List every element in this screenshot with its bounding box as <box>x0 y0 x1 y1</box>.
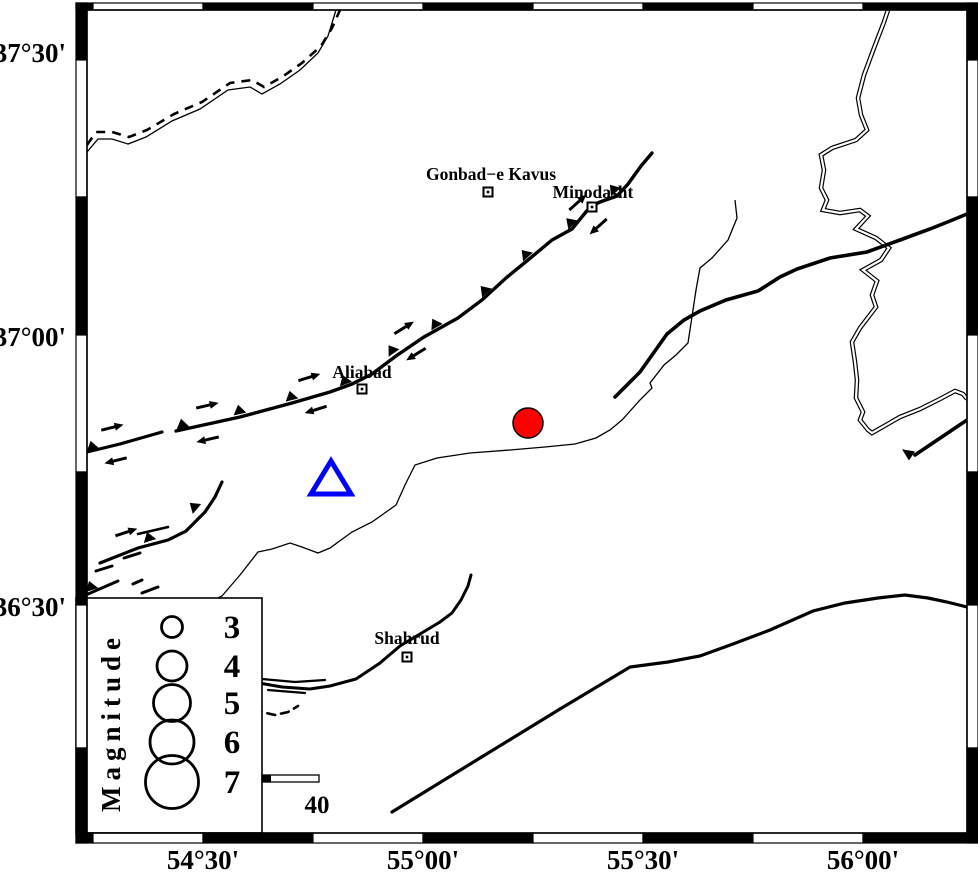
city-marker-dot <box>361 388 364 391</box>
city-label: Gonbad−e Kavus <box>426 164 556 184</box>
frame-band-segment <box>76 197 87 335</box>
seismotectonic-map: Gonbad−e KavusMinodashtAliabadShahrud Ma… <box>0 0 978 873</box>
map-canvas: Gonbad−e KavusMinodashtAliabadShahrud Ma… <box>0 0 978 873</box>
frame-band-segment <box>753 3 863 10</box>
city-label: Aliabad <box>332 362 392 382</box>
frame-band-segment <box>967 472 978 605</box>
epicenter-marker <box>513 408 543 438</box>
frame-band-segment <box>76 472 87 605</box>
frame-band-segment <box>93 3 203 10</box>
legend-magnitude-value: 7 <box>224 765 241 801</box>
magnitude-legend: Magnitude 34567 <box>76 598 262 833</box>
frame-band-segment <box>533 3 643 10</box>
frame-band-segment <box>643 833 753 843</box>
y-axis-label: 36°30' <box>0 592 66 622</box>
x-axis-label: 55°00' <box>387 845 459 873</box>
frame-band-segment <box>76 60 87 197</box>
y-axis-label: 37°30' <box>0 38 66 68</box>
legend-magnitude-value: 3 <box>224 610 241 646</box>
city-label: Shahrud <box>374 628 439 648</box>
y-axis-label: 37°00' <box>0 322 66 352</box>
frame-band-segment <box>423 833 533 843</box>
scale-bar-label: 40 <box>305 792 330 819</box>
city-label: Minodasht <box>553 182 634 202</box>
frame-band-segment <box>863 833 978 843</box>
legend-title: Magnitude <box>96 632 126 812</box>
frame-band-segment <box>967 197 978 335</box>
frame-band-segment <box>967 3 978 60</box>
frame-band-segment <box>533 833 643 843</box>
frame-band-segment <box>203 3 313 10</box>
x-axis-label: 56°00' <box>827 845 899 873</box>
frame-band-segment <box>643 3 753 10</box>
frame-band-segment <box>863 3 978 10</box>
frame-band-segment <box>76 605 87 748</box>
legend-magnitude-value: 6 <box>224 725 241 761</box>
legend-magnitude-value: 5 <box>224 686 241 722</box>
legend-magnitude-value: 4 <box>224 649 241 685</box>
x-axis-label: 55°30' <box>607 845 679 873</box>
city-marker-dot <box>487 191 490 194</box>
frame-band-segment <box>753 833 863 843</box>
x-axis-label: 54°30' <box>167 845 239 873</box>
city-marker-dot <box>591 206 594 209</box>
frame-band-segment <box>76 3 87 60</box>
frame-band-segment <box>967 60 978 197</box>
city-marker-dot <box>406 656 409 659</box>
frame-band-segment <box>76 335 87 472</box>
frame-band-segment <box>313 3 423 10</box>
frame-band-segment <box>967 748 978 843</box>
frame-band-segment <box>423 3 533 10</box>
frame-band-segment <box>967 605 978 748</box>
scale-bar-filled-segment <box>262 775 271 782</box>
frame-band-segment <box>967 335 978 472</box>
frame-band-segment <box>76 748 87 843</box>
frame-band-segment <box>93 833 203 843</box>
frame-band-segment <box>203 833 313 843</box>
frame-band-segment <box>313 833 423 843</box>
